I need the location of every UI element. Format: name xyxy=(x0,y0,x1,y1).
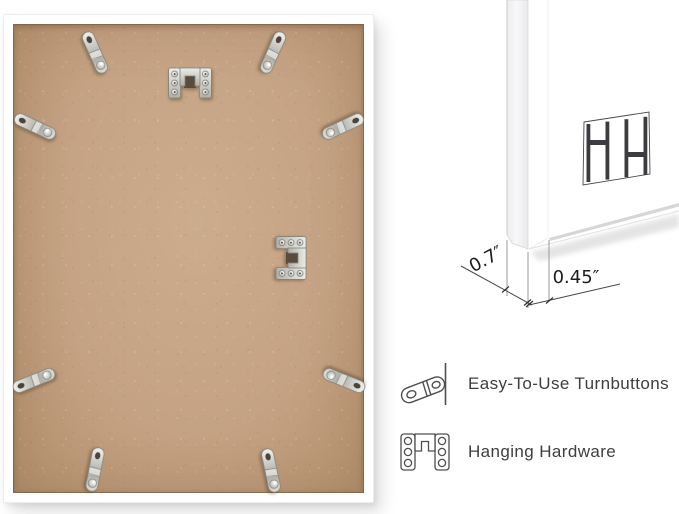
turnbutton-icon xyxy=(398,358,452,410)
hanging-hardware-bracket xyxy=(168,64,212,102)
frame-back-photo xyxy=(3,14,374,503)
face-width-dimension-label: 0.45″ xyxy=(553,267,600,288)
feature-label: Easy-To-Use Turnbuttons xyxy=(468,374,669,394)
depth-dimension-label: 0.7″ xyxy=(466,242,507,277)
frame-side-face xyxy=(507,0,528,249)
hanging-hardware-icon xyxy=(398,426,452,478)
corner-closeup: 0.7″ 0.45″ xyxy=(440,0,679,332)
feature-row-hanging-hardware: Hanging Hardware xyxy=(398,426,616,478)
hanging-hardware-bracket xyxy=(272,236,310,280)
product-infographic: 0.7″ 0.45″ Easy-To-Use Turnbuttons xyxy=(0,0,679,514)
frame-front-face xyxy=(528,0,679,249)
feature-row-turnbuttons: Easy-To-Use Turnbuttons xyxy=(398,358,669,410)
feature-label: Hanging Hardware xyxy=(468,442,616,462)
